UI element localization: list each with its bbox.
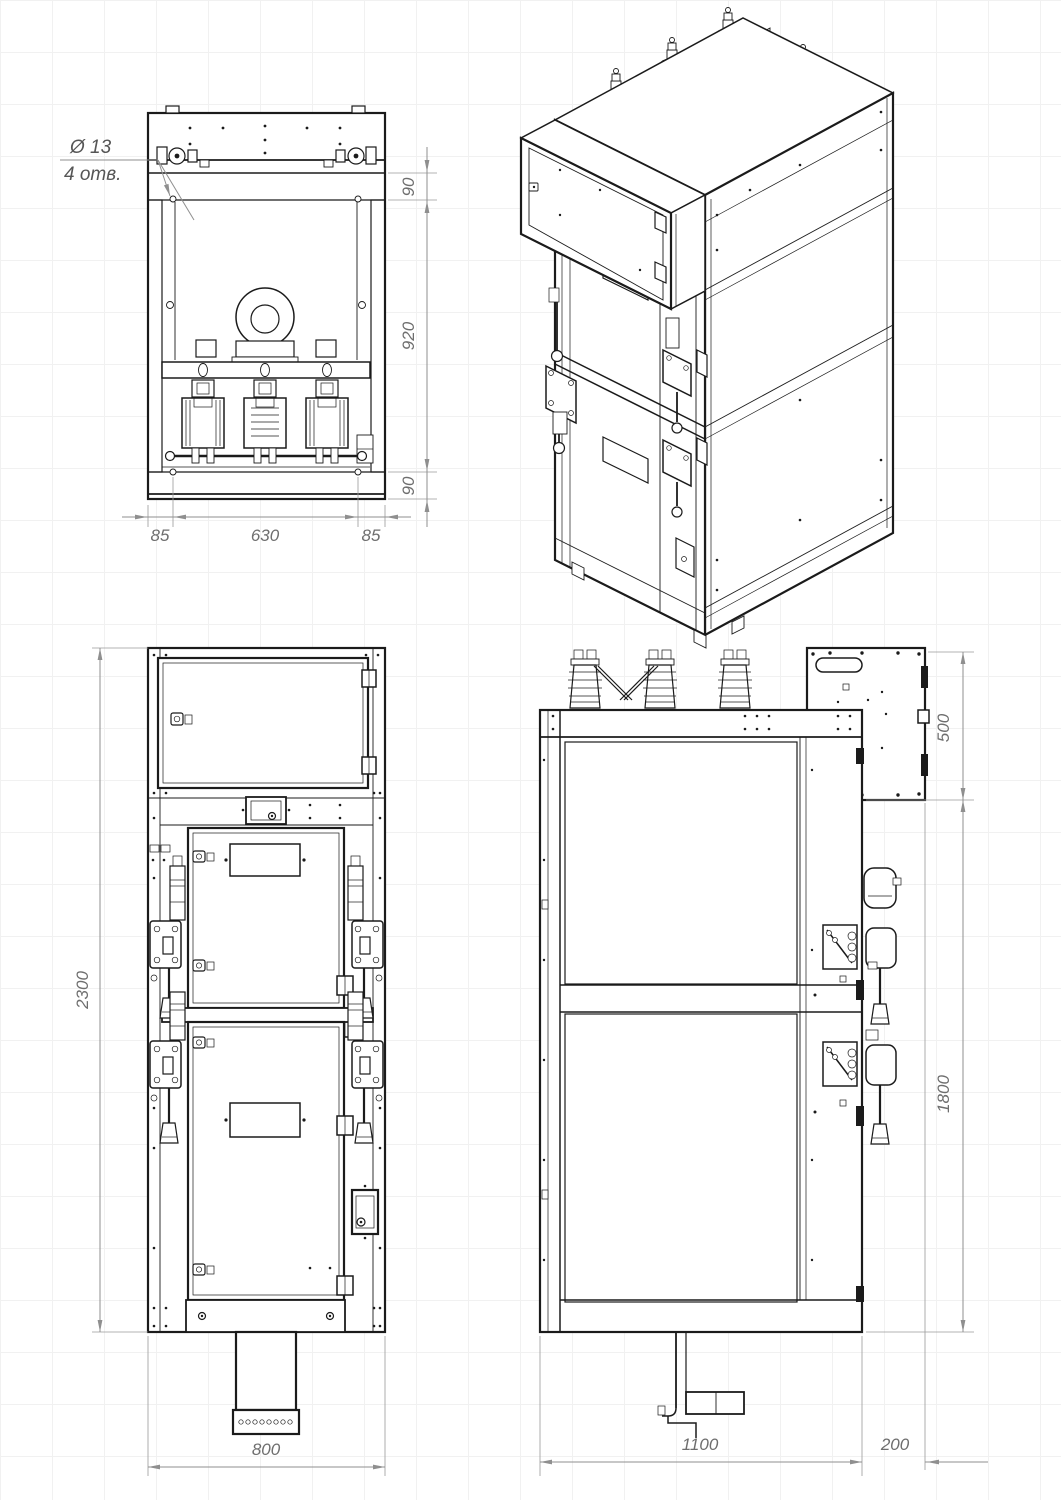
callout-holes: 4 отв. [64,164,121,185]
drive-handle [160,1123,178,1143]
mounting-hole [355,196,361,202]
interlock-box [352,1185,378,1240]
handle-slot [816,658,862,672]
isometric-view [521,8,893,649]
dim-1100: 1100 [682,1435,719,1454]
lower-door [188,1022,353,1300]
lock [193,1037,214,1048]
lock [193,960,214,971]
callout-diameter: Ø 13 [69,137,112,158]
cable-outlet [658,1332,744,1438]
lock [193,1264,214,1275]
roof-bushing [718,650,752,708]
roof-bushing [568,650,602,708]
dim-1800: 1800 [934,1075,953,1113]
dim-85-left: 85 [151,526,170,545]
drive-handle [871,1004,889,1024]
dim-90-front: 90 [399,476,418,495]
drawing-sheet: Ø 13 4 отв. 90 920 90 85 630 85 [0,0,1061,1500]
dim-630: 630 [251,526,280,545]
relay-compartment-door [158,658,376,788]
front-view [148,648,385,1434]
base-band [186,1300,345,1332]
side-view [540,648,929,1438]
dim-85-right: 85 [362,526,381,545]
dim-2300: 2300 [73,971,92,1010]
drive-handle [871,1124,889,1144]
mounting-hole [355,469,361,475]
mounting-hole [170,196,176,202]
lock [193,851,214,862]
drawing-canvas: Ø 13 4 отв. 90 920 90 85 630 85 [0,0,1061,1500]
top-view [148,106,385,499]
dim-200: 200 [880,1435,910,1454]
bottom-duct [233,1332,299,1434]
middle-door [188,828,353,1037]
lock [171,713,192,725]
dim-800: 800 [252,1440,281,1459]
mounting-hole [170,469,176,475]
dim-920: 920 [399,321,418,350]
dim-90-rear: 90 [399,177,418,196]
transom [162,1008,373,1022]
drive-handle [355,1123,373,1143]
roof-bushing [643,650,677,708]
dim-500: 500 [934,713,953,742]
